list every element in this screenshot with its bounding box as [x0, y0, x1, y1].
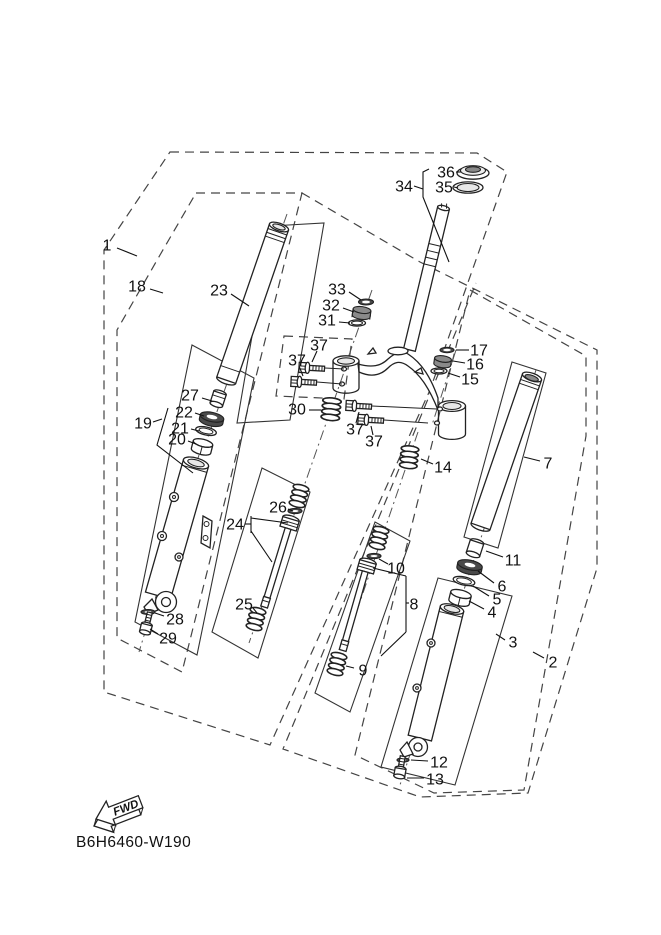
stem-seal-set-upper	[349, 299, 374, 326]
callout-37: 37	[346, 422, 364, 439]
seal-washer-right	[452, 575, 475, 588]
leader-6	[478, 571, 494, 583]
callout-15: 15	[461, 372, 479, 389]
leader-33	[349, 292, 361, 300]
callout-37: 37	[365, 434, 383, 451]
leader-5	[473, 586, 489, 596]
leader-32	[343, 308, 354, 312]
diagram-code: B6H6460-W190	[76, 834, 191, 851]
leader-12	[411, 760, 428, 761]
callout-3: 3	[509, 635, 518, 652]
callout-8: 8	[410, 597, 419, 614]
damper-rod-left	[256, 508, 302, 609]
callout-9: 9	[359, 663, 368, 680]
leader-18	[150, 289, 163, 293]
callout-1: 1	[103, 238, 112, 255]
fwd-arrow: FWD	[94, 796, 143, 833]
inner-tube-right	[470, 370, 543, 533]
leader-16	[453, 361, 465, 363]
callout-11: 11	[505, 553, 522, 570]
callout-7: 7	[544, 456, 553, 473]
callout-2: 2	[549, 655, 558, 672]
callout-10: 10	[387, 561, 405, 578]
callout-30: 30	[288, 402, 306, 419]
steering-stem	[404, 202, 451, 352]
callout-28: 28	[166, 612, 184, 629]
taper-spindle-left	[209, 389, 227, 409]
leader-19	[153, 419, 162, 422]
oil-seal-left	[198, 410, 224, 428]
leader-9	[346, 666, 354, 668]
callout-35: 35	[435, 180, 453, 197]
bearing-cover	[457, 166, 489, 180]
callout-18: 18	[128, 279, 146, 296]
drain-bolt-left	[139, 611, 155, 636]
leader-28	[155, 613, 164, 616]
diagram-svg: FWD B6H6460-W190 11823333231363534373737…	[0, 0, 661, 935]
callout-27: 27	[181, 388, 199, 405]
callout-19: 19	[134, 416, 152, 433]
callout-31: 31	[318, 313, 336, 330]
callout-24: 24	[226, 517, 244, 534]
slide-bushing-left	[190, 437, 213, 457]
callout-12: 12	[430, 755, 448, 772]
inner-tube-left	[216, 220, 290, 387]
leader-34	[414, 186, 423, 189]
outer-tube-right	[400, 602, 465, 757]
leader-15	[448, 373, 460, 377]
leader-11	[486, 551, 503, 557]
callout-23: 23	[210, 283, 228, 300]
springs	[245, 397, 419, 677]
leader-7	[524, 457, 540, 461]
callout-37: 37	[310, 338, 328, 355]
oil-seal-right	[456, 558, 483, 577]
callout-22: 22	[175, 405, 193, 422]
callout-29: 29	[159, 631, 177, 648]
parts-diagram-page: FWD B6H6460-W190 11823333231363534373737…	[0, 0, 661, 935]
callout-20: 20	[168, 432, 186, 449]
callout-26: 26	[269, 500, 287, 517]
callout-34: 34	[395, 179, 413, 196]
callout-33: 33	[328, 282, 346, 299]
taper-spindle-right	[466, 537, 485, 559]
callout-14: 14	[434, 460, 452, 477]
outer-tube-left	[144, 455, 212, 614]
callout-13: 13	[426, 772, 444, 789]
leader-4	[469, 601, 484, 609]
leader-2	[533, 652, 544, 658]
callout-4: 4	[488, 605, 497, 622]
callout-25: 25	[235, 597, 253, 614]
leader-1	[117, 248, 137, 256]
callout-37: 37	[288, 353, 306, 370]
